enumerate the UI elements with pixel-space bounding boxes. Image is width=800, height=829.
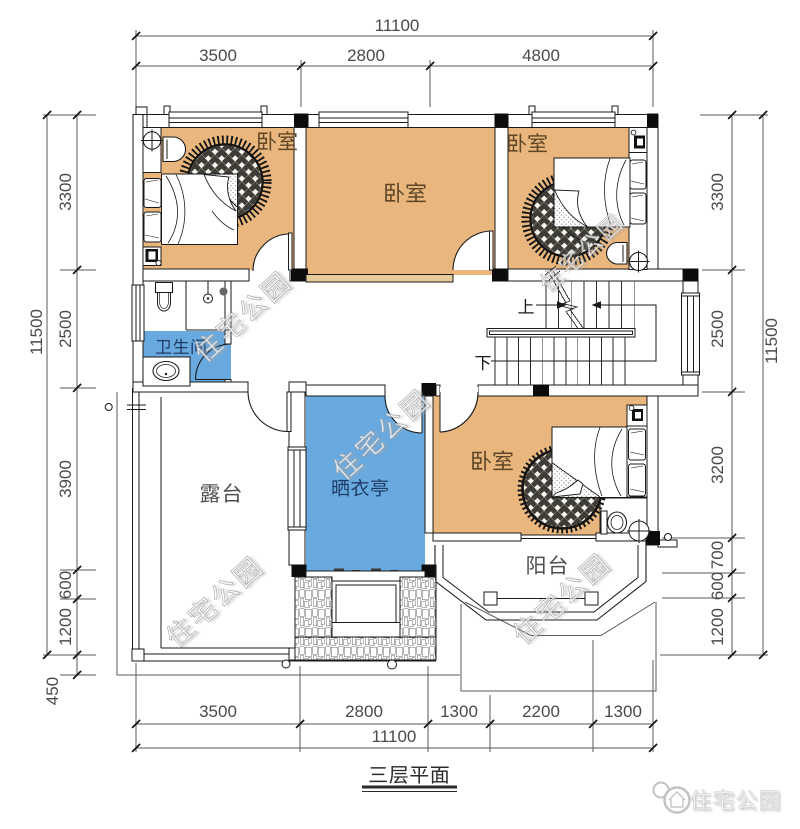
svg-text:3200: 3200 [708,446,727,484]
svg-text:2500: 2500 [56,310,75,348]
svg-text:1300: 1300 [440,702,478,721]
svg-text:2800: 2800 [345,702,383,721]
svg-text:3900: 3900 [56,460,75,498]
svg-text:1200: 1200 [56,608,75,646]
svg-text:1300: 1300 [604,702,642,721]
svg-text:3500: 3500 [199,702,237,721]
svg-text:700: 700 [708,541,727,569]
svg-text:600: 600 [56,571,75,599]
svg-text:1200: 1200 [708,608,727,646]
svg-text:600: 600 [708,572,727,600]
svg-text:11100: 11100 [372,727,417,746]
svg-text:3300: 3300 [708,173,727,211]
svg-text:11500: 11500 [762,318,781,364]
svg-text:2200: 2200 [522,702,560,721]
svg-text:3500: 3500 [199,46,237,65]
svg-text:450: 450 [43,677,62,705]
svg-text:4800: 4800 [522,46,560,65]
svg-text:2500: 2500 [708,310,727,348]
svg-text:11500: 11500 [27,309,46,355]
svg-text:3300: 3300 [56,173,75,211]
svg-text:11100: 11100 [375,16,420,35]
svg-text:2800: 2800 [347,46,385,65]
